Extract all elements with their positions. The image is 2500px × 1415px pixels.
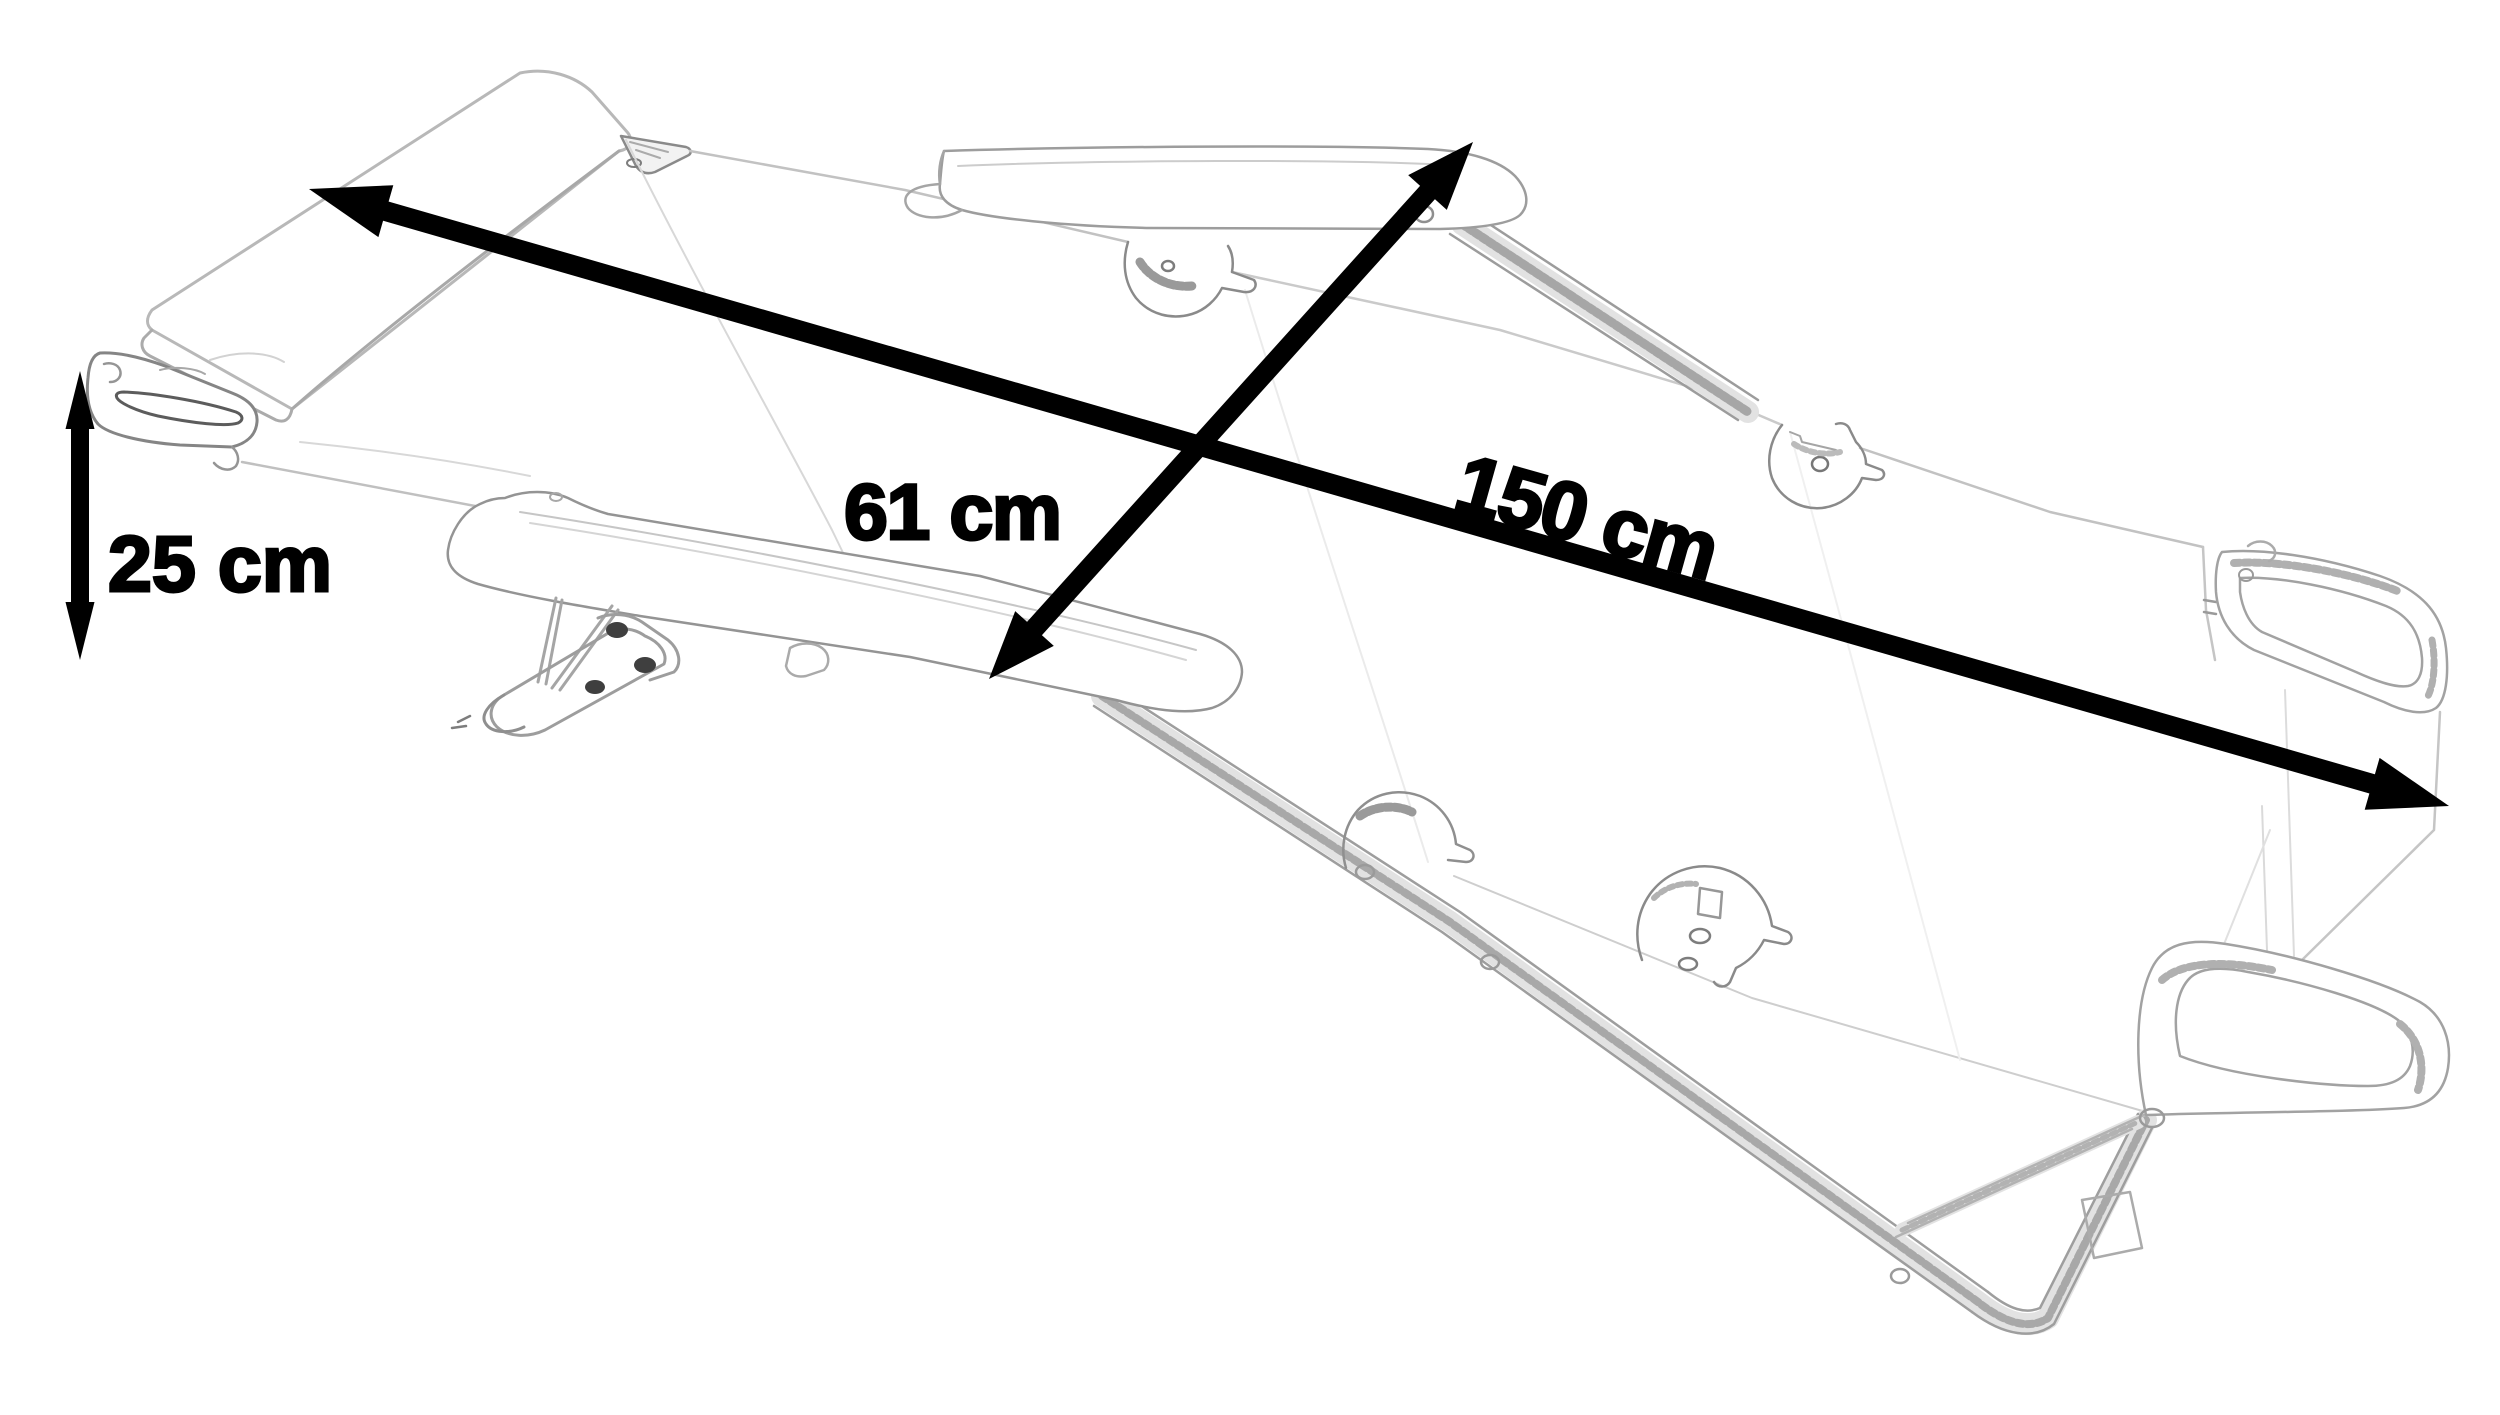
svg-text:25 cm: 25 cm	[108, 519, 332, 608]
svg-text:61 cm: 61 cm	[844, 467, 1061, 556]
